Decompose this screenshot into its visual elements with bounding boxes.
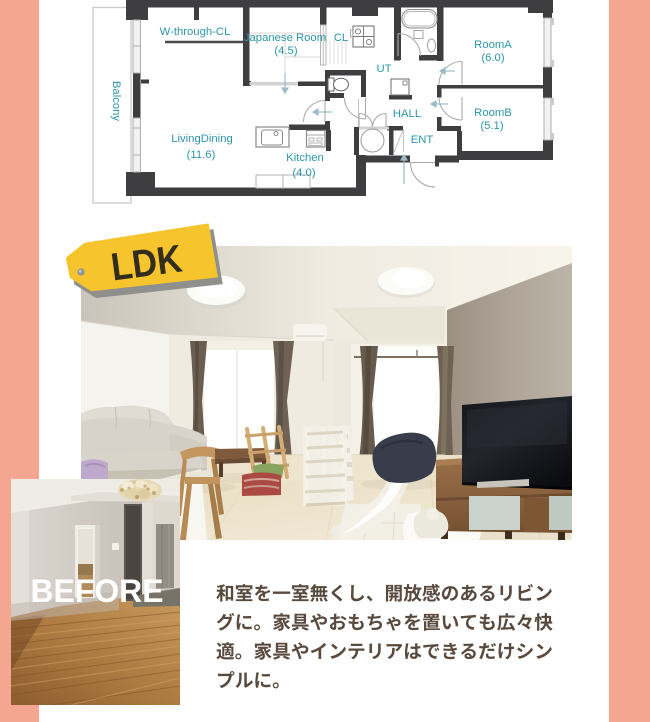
svg-text:Japanese Room: Japanese Room xyxy=(244,32,326,44)
svg-text:LivingDining: LivingDining xyxy=(171,133,233,145)
svg-text:(5.1): (5.1) xyxy=(480,120,503,132)
svg-text:W-through-CL: W-through-CL xyxy=(160,26,231,38)
svg-text:UT: UT xyxy=(376,63,391,75)
svg-text:Balcony: Balcony xyxy=(110,81,122,122)
svg-text:ENT: ENT xyxy=(411,134,434,146)
svg-text:(4.5): (4.5) xyxy=(274,45,297,57)
svg-text:(6.0): (6.0) xyxy=(481,52,504,64)
svg-text:RoomB: RoomB xyxy=(474,107,512,119)
svg-text:HALL: HALL xyxy=(393,108,421,120)
svg-text:(4.0): (4.0) xyxy=(292,167,315,179)
svg-text:CL: CL xyxy=(334,32,348,44)
svg-text:(11.6): (11.6) xyxy=(187,149,216,161)
svg-text:RoomA: RoomA xyxy=(474,39,512,51)
svg-text:LDK: LDK xyxy=(109,238,185,290)
svg-text:Kitchen: Kitchen xyxy=(286,152,324,164)
